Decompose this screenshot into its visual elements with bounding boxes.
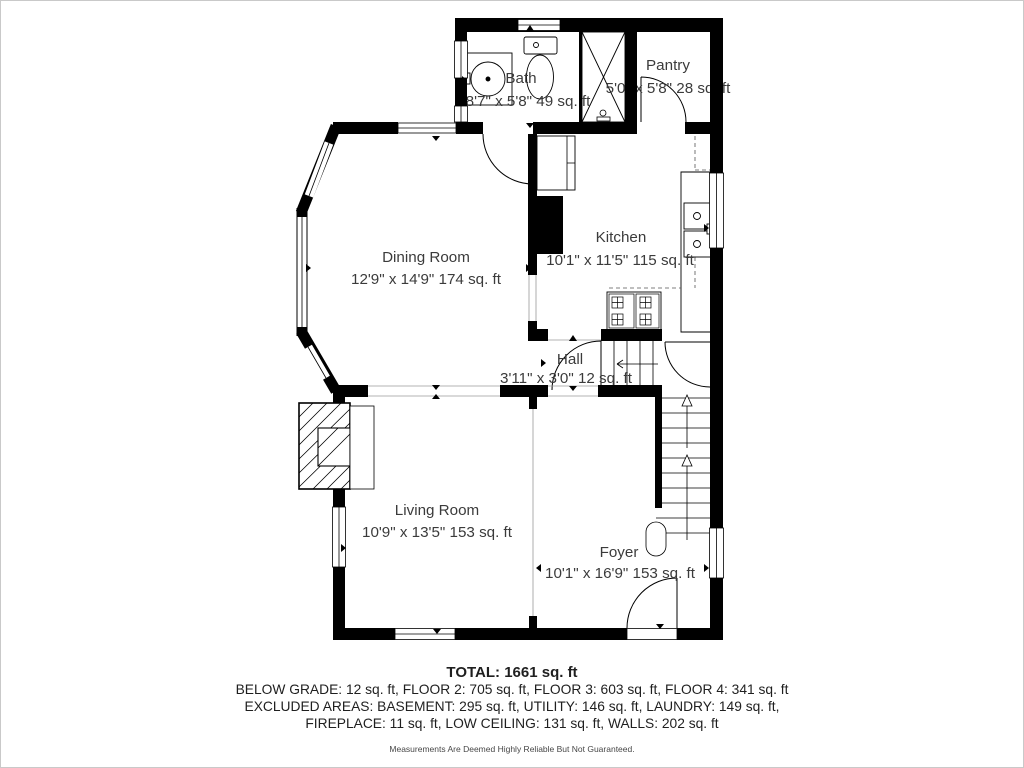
bath-door-arc bbox=[483, 134, 533, 184]
room-name-dining: Dining Room bbox=[382, 249, 470, 266]
room-name-foyer: Foyer bbox=[600, 544, 639, 561]
fireplace-icon bbox=[299, 403, 374, 489]
window-foyer-right bbox=[710, 528, 724, 578]
window-bath-left-2 bbox=[455, 106, 468, 122]
toilet-icon bbox=[524, 37, 557, 99]
summary-disclaimer: Measurements Are Deemed Highly Reliable … bbox=[0, 744, 1024, 754]
floor-plan-svg: Bath 8'7" x 5'8" 49 sq. ft Pantry 5'0" x… bbox=[0, 0, 1024, 768]
room-dims-foyer: 10'1" x 16'9" 153 sq. ft bbox=[545, 565, 696, 582]
bay-window-icon bbox=[301, 126, 336, 391]
kitchen-cabinet bbox=[537, 136, 575, 190]
room-dims-hall: 3'11" x 3'0" 12 sq. ft bbox=[500, 370, 633, 387]
window-top-bath bbox=[518, 20, 560, 31]
summary-block: TOTAL: 1661 sq. ft BELOW GRADE: 12 sq. f… bbox=[0, 664, 1024, 754]
window-kitchen-right bbox=[710, 173, 724, 248]
room-dims-dining: 12'9" x 14'9" 174 sq. ft bbox=[351, 271, 502, 288]
room-name-kitchen: Kitchen bbox=[596, 229, 647, 246]
window-dining-top bbox=[398, 123, 456, 133]
front-door-arc bbox=[627, 578, 677, 628]
room-dims-living: 10'9" x 13'5" 153 sq. ft bbox=[362, 524, 513, 541]
summary-excluded-line: EXCLUDED AREAS: BASEMENT: 295 sq. ft, UT… bbox=[0, 698, 1024, 715]
front-door-threshold bbox=[627, 629, 677, 640]
summary-total: TOTAL: 1661 sq. ft bbox=[0, 664, 1024, 681]
room-dims-kitchen: 10'1" x 11'5" 115 sq. ft bbox=[546, 252, 695, 269]
window-living-left bbox=[333, 507, 346, 567]
stove-icon bbox=[607, 292, 661, 330]
door-arcs bbox=[483, 77, 710, 640]
floor-plan-page: { "plan": { "rooms": [ {"name": "Bath", … bbox=[0, 0, 1024, 768]
window-living-bottom bbox=[395, 629, 455, 640]
room-name-hall: Hall bbox=[557, 351, 583, 368]
window-bath-left-1 bbox=[455, 41, 468, 78]
room-name-bath: Bath bbox=[505, 70, 536, 87]
summary-floors-line: BELOW GRADE: 12 sq. ft, FLOOR 2: 705 sq.… bbox=[0, 681, 1024, 698]
room-name-pantry: Pantry bbox=[646, 57, 690, 74]
summary-excluded-line-2: FIREPLACE: 11 sq. ft, LOW CEILING: 131 s… bbox=[0, 715, 1024, 732]
room-dims-bath: 8'7" x 5'8" 49 sq. ft bbox=[466, 93, 591, 110]
room-name-living: Living Room bbox=[395, 502, 479, 519]
chimney-block bbox=[533, 196, 563, 254]
stair-door-arc bbox=[665, 342, 710, 387]
